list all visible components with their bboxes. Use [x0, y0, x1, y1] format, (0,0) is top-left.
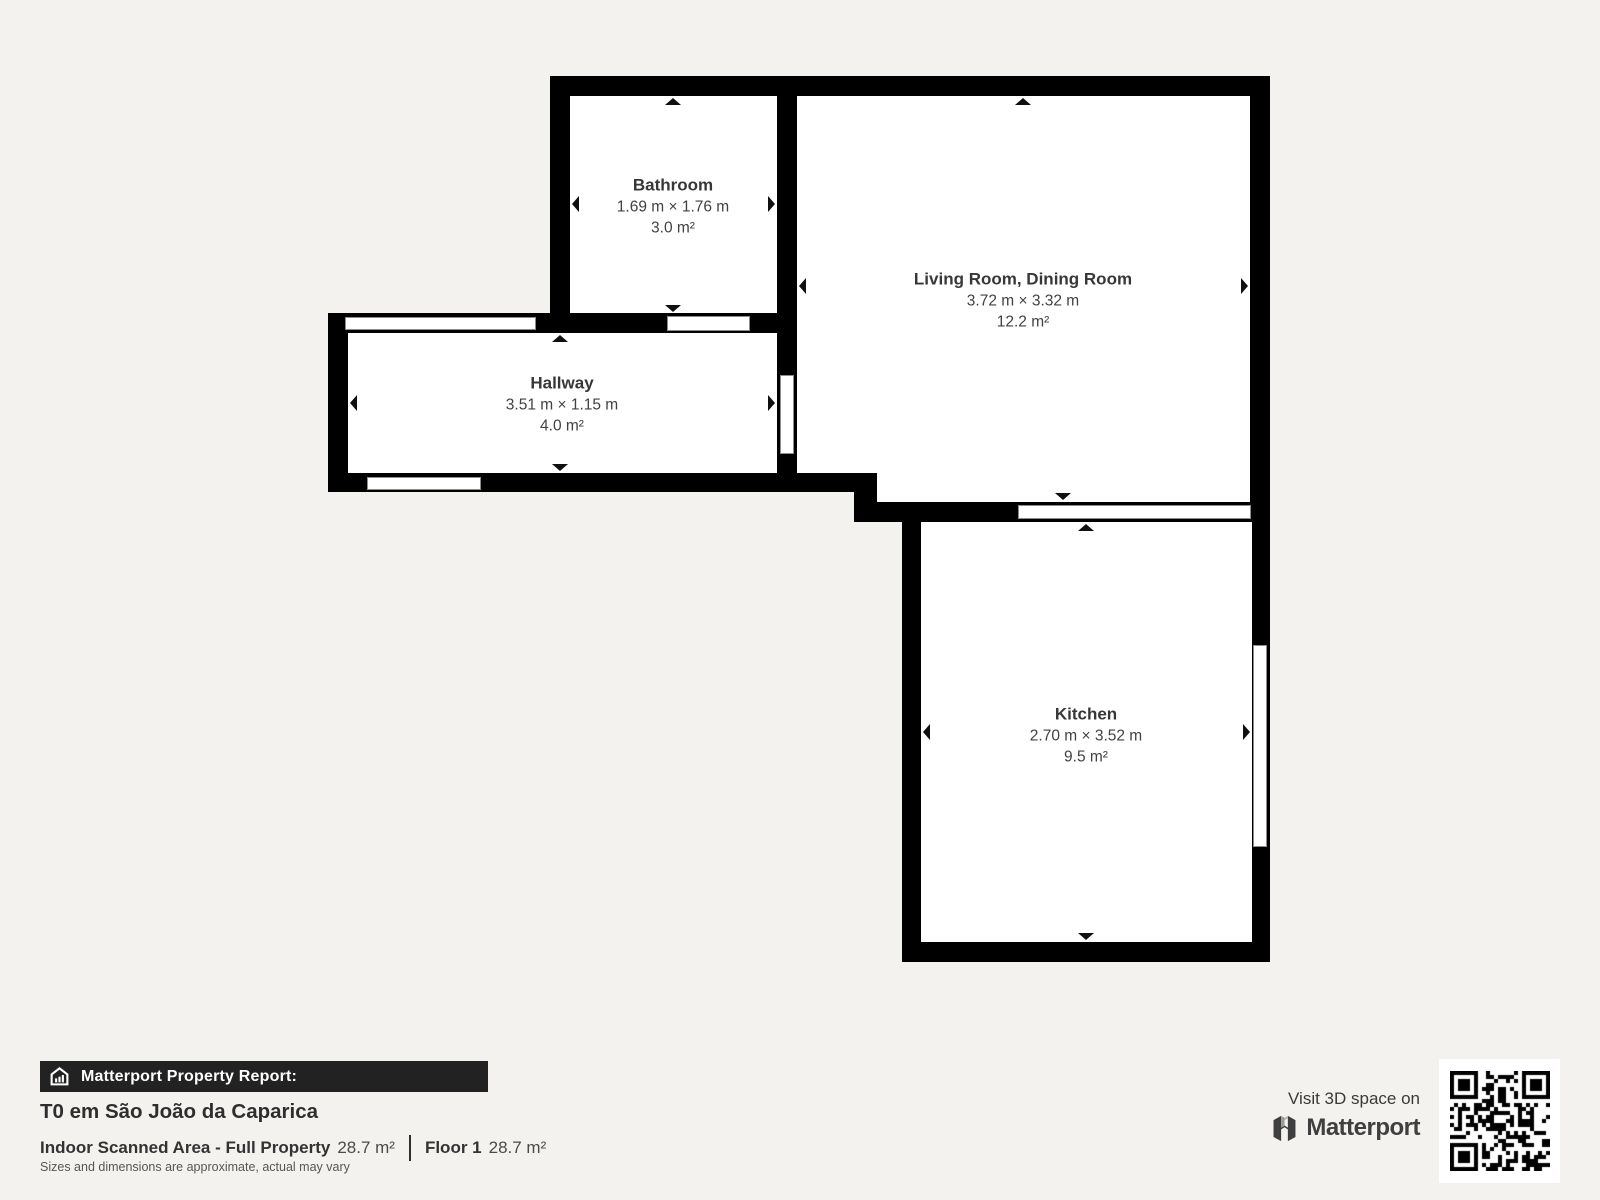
room-dimensions: 1.69 m × 1.76 m — [617, 198, 729, 219]
room-area: 9.5 m² — [1030, 747, 1142, 768]
window-opening — [367, 477, 481, 490]
report-meta: Indoor Scanned Area - Full Property 28.7… — [40, 1134, 546, 1162]
matterport-logo-icon — [1271, 1115, 1298, 1142]
room-dimensions: 3.51 m × 1.15 m — [506, 396, 618, 417]
arrow-up-icon — [552, 335, 568, 342]
window-opening — [345, 317, 536, 330]
room-area: 4.0 m² — [506, 416, 618, 437]
room-label-living: Living Room, Dining Room 3.72 m × 3.32 m… — [914, 268, 1132, 333]
arrow-down-icon — [1078, 933, 1094, 940]
wall — [550, 96, 570, 333]
promo-block: Visit 3D space on Matterport — [1271, 1088, 1420, 1142]
arrow-up-icon — [1015, 98, 1031, 105]
floor-value: 28.7 m² — [489, 1138, 547, 1158]
wall — [854, 473, 877, 522]
visit-3d-text: Visit 3D space on — [1271, 1088, 1420, 1110]
wall — [550, 76, 1270, 96]
window-opening — [1253, 645, 1267, 847]
room-name: Living Room, Dining Room — [914, 268, 1132, 292]
room-dimensions: 2.70 m × 3.52 m — [1030, 727, 1142, 748]
report-title: T0 em São João da Caparica — [40, 1100, 318, 1124]
room-label-hallway: Hallway 3.51 m × 1.15 m 4.0 m² — [506, 372, 618, 437]
door-opening — [1018, 505, 1251, 519]
door-opening — [780, 375, 794, 454]
arrow-down-icon — [665, 305, 681, 312]
room-area: 3.0 m² — [617, 218, 729, 239]
brand-wordmark: Matterport — [1306, 1114, 1420, 1142]
brand-row: Matterport — [1271, 1114, 1420, 1142]
arrow-down-icon — [552, 464, 568, 471]
wall — [328, 333, 348, 492]
separator — [409, 1135, 411, 1161]
arrow-right-icon — [1243, 724, 1250, 740]
arrow-up-icon — [1078, 524, 1094, 531]
qr-code — [1450, 1071, 1550, 1171]
floor-label: Floor 1 — [425, 1138, 482, 1158]
arrow-right-icon — [768, 196, 775, 212]
arrow-right-icon — [768, 395, 775, 411]
door-opening — [667, 316, 750, 331]
arrow-left-icon — [799, 278, 806, 294]
room-area: 12.2 m² — [914, 312, 1132, 333]
room-label-bathroom: Bathroom 1.69 m × 1.76 m 3.0 m² — [617, 174, 729, 239]
arrow-right-icon — [1241, 278, 1248, 294]
arrow-down-icon — [1055, 493, 1071, 500]
disclaimer-text: Sizes and dimensions are approximate, ac… — [40, 1160, 350, 1174]
room-dimensions: 3.72 m × 3.32 m — [914, 292, 1132, 313]
arrow-left-icon — [572, 196, 579, 212]
indoor-area-value: 28.7 m² — [337, 1138, 395, 1158]
room-name: Bathroom — [617, 174, 729, 198]
qr-card — [1439, 1059, 1560, 1183]
room-label-kitchen: Kitchen 2.70 m × 3.52 m 9.5 m² — [1030, 703, 1142, 768]
wall — [902, 522, 922, 962]
wall — [902, 942, 1270, 962]
indoor-area-label: Indoor Scanned Area - Full Property — [40, 1138, 330, 1158]
report-banner: Matterport Property Report: — [40, 1061, 488, 1092]
room-name: Kitchen — [1030, 703, 1142, 727]
room-name: Hallway — [506, 372, 618, 396]
banner-label: Matterport Property Report: — [81, 1068, 297, 1086]
house-icon — [49, 1066, 70, 1087]
arrow-left-icon — [923, 724, 930, 740]
arrow-left-icon — [350, 395, 357, 411]
arrow-up-icon — [665, 98, 681, 105]
floor-plan: Bathroom 1.69 m × 1.76 m 3.0 m² Living R… — [0, 0, 1600, 1200]
